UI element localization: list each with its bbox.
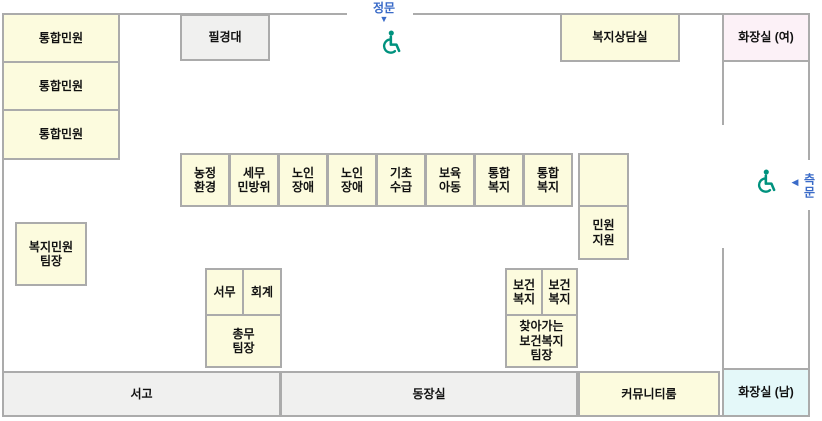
desk-empty [578,153,629,207]
room-counter-2: 통합민원 [2,61,120,111]
wall-inner-lower [722,248,724,370]
room-community-room: 커뮤니티룸 [578,371,720,417]
desk-senior-disabled-2: 노인 장애 [327,153,377,207]
desk-integrated-welfare-1: 통합 복지 [474,153,524,207]
desk-tax-civil: 세무 민방위 [229,153,279,207]
floor-plan: 정문 ▼ 측문 ◀ 통합민원 통합민원 통합민원 필경대 복지상담실 화장실 (… [0,0,822,421]
desk-agri-env: 농정 환경 [180,153,230,207]
room-restroom-men: 화장실 (남) [722,368,810,417]
wheelchair-icon [376,29,403,63]
desk-minwon-support: 민원 지원 [578,205,629,260]
main-gate-arrow-icon: ▼ [360,15,408,24]
desk-health-welfare-2: 보건 복지 [541,268,578,316]
room-welfare-team-leader: 복지민원 팀장 [15,222,87,286]
room-archive: 서고 [2,371,281,417]
room-visiting-health-team-leader: 찾아가는 보건복지 팀장 [505,314,578,368]
desk-integrated-welfare-2: 통합 복지 [523,153,573,207]
room-writing-desk: 필경대 [180,14,270,61]
desk-childcare: 보육 아동 [425,153,475,207]
wheelchair-icon [751,168,778,202]
desk-accounting: 회계 [242,268,282,316]
room-counter-3: 통합민원 [2,109,120,160]
room-chief-office: 동장실 [280,371,578,417]
desk-general-affairs: 서무 [205,268,244,316]
desk-senior-disabled-1: 노인 장애 [278,153,328,207]
room-welfare-consult: 복지상담실 [560,13,680,62]
side-gate-label: 측문 [801,162,818,210]
room-general-team-leader: 총무 팀장 [205,314,282,368]
side-gate-arrow-icon: ◀ [790,178,800,187]
room-counter-1: 통합민원 [2,13,120,63]
room-restroom-women: 화장실 (여) [722,13,810,62]
wall-inner-upper [722,60,724,125]
desk-health-welfare-1: 보건 복지 [505,268,543,316]
desk-basic-benefit: 기초 수급 [376,153,426,207]
